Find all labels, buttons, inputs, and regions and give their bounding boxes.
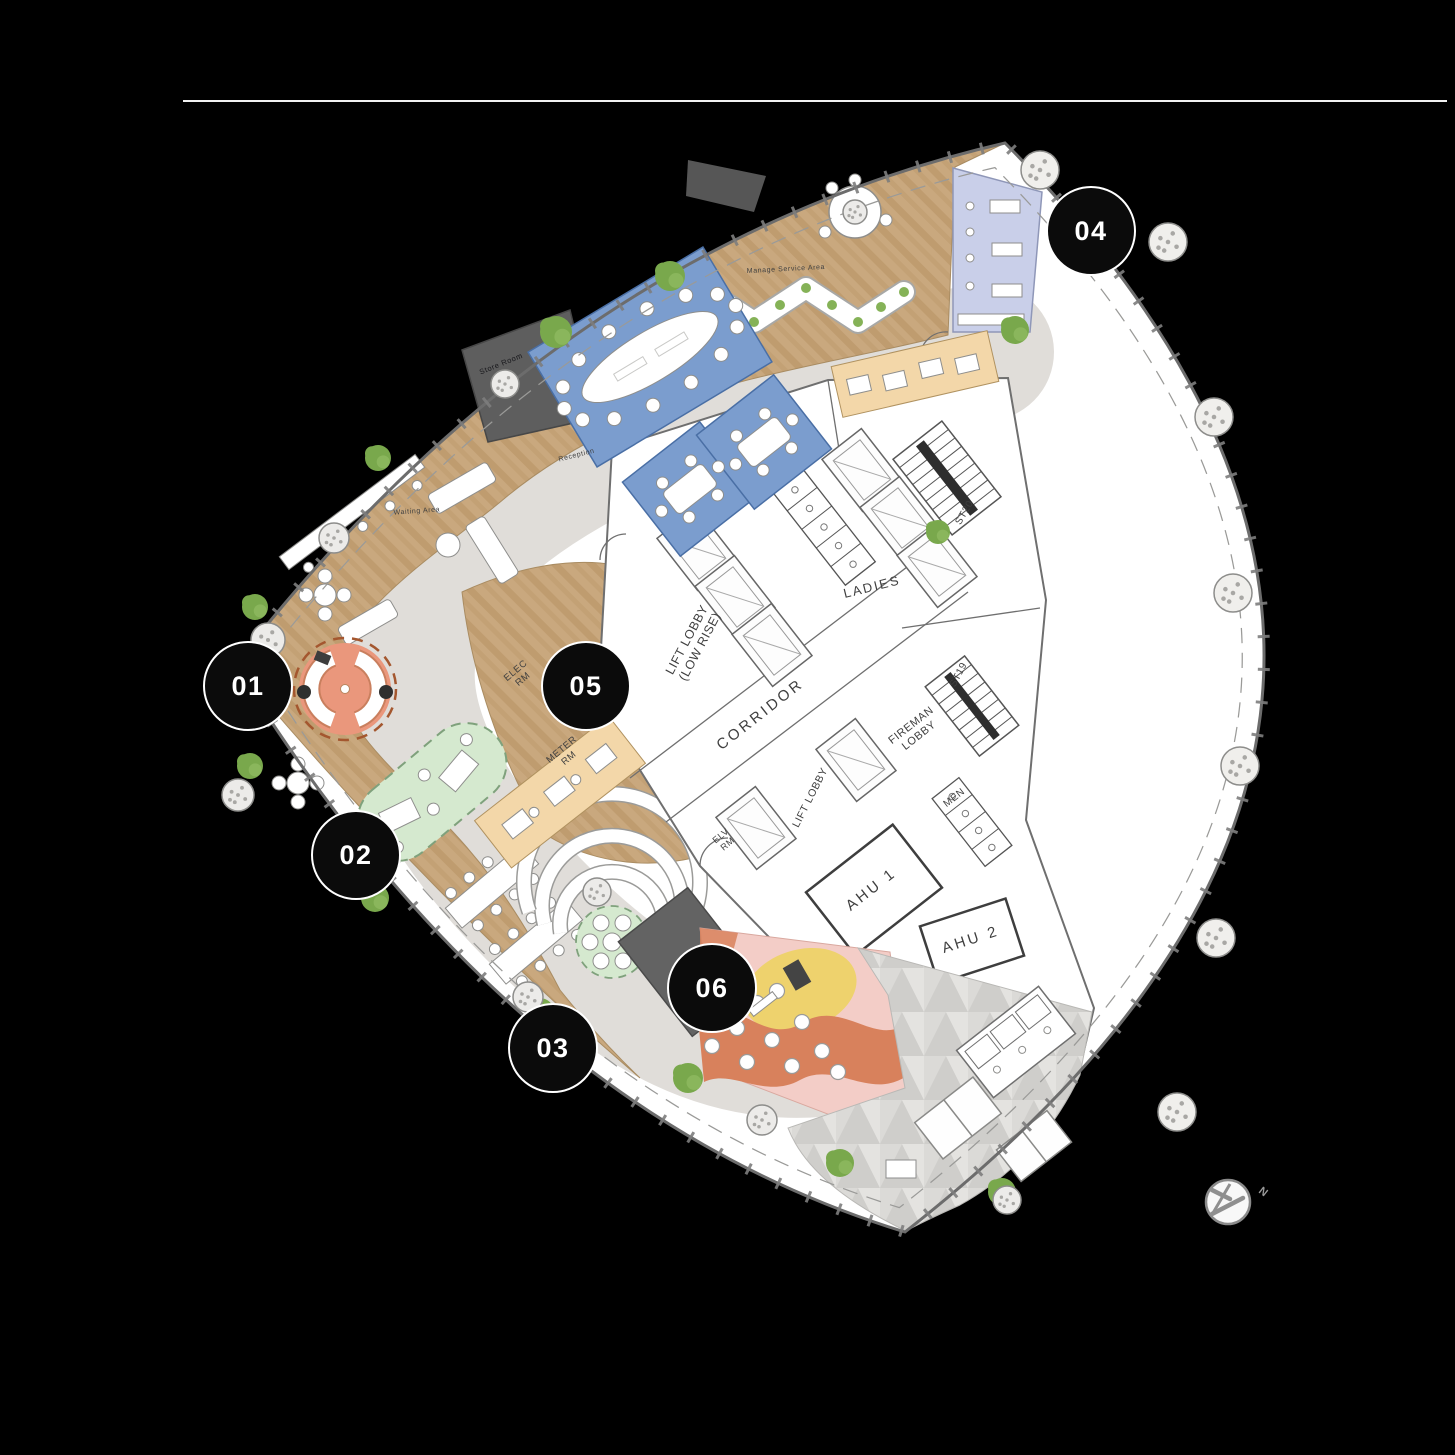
stool-icon (740, 1055, 755, 1070)
chair-icon (646, 398, 660, 412)
planter-icon (491, 370, 519, 398)
column-icon (1214, 574, 1252, 612)
tree-icon (673, 1063, 703, 1093)
desk-planter-icon (827, 300, 837, 310)
stool-icon (795, 1015, 810, 1030)
tree-icon (540, 316, 572, 348)
planter-icon (843, 200, 867, 224)
compass-north-label: N (1256, 1185, 1270, 1199)
chair-icon (712, 489, 724, 501)
stool-icon (831, 1065, 846, 1080)
marker-number: 06 (695, 973, 728, 1003)
slide-canvas: N LIFT LOBBY(LOW RISE)CORRIDORLADIESFIRE… (0, 0, 1455, 1455)
marker-number: 02 (339, 840, 372, 870)
column-icon (1021, 151, 1059, 189)
marker-04[interactable]: 04 (1047, 187, 1135, 275)
chair-icon (685, 455, 697, 467)
desk-planter-icon (899, 287, 909, 297)
dark-service-sliver (686, 160, 766, 212)
marker-03[interactable]: 03 (509, 1004, 597, 1092)
marker-05[interactable]: 05 (542, 642, 630, 730)
desk-planter-icon (876, 302, 886, 312)
marker-number: 01 (231, 671, 264, 701)
chair-icon (683, 511, 695, 523)
tree-icon (1001, 316, 1029, 344)
chair-icon (556, 380, 570, 394)
chair-icon (730, 458, 742, 470)
tree-icon (926, 520, 950, 544)
marker-02[interactable]: 02 (312, 811, 400, 899)
chair-icon (730, 320, 744, 334)
tree-icon (655, 261, 685, 291)
chair-icon (656, 477, 668, 489)
stool-icon (785, 1059, 800, 1074)
marker-01[interactable]: 01 (204, 642, 292, 730)
floor-plan: N LIFT LOBBY(LOW RISE)CORRIDORLADIESFIRE… (0, 0, 1455, 1455)
planter-icon (583, 878, 611, 906)
tree-icon (237, 753, 263, 779)
marker-number: 05 (569, 671, 602, 701)
chair-icon (684, 375, 698, 389)
chair-icon (557, 402, 571, 416)
experimental-room (953, 168, 1042, 332)
chair-icon (759, 408, 771, 420)
planter-icon (747, 1105, 777, 1135)
marker-number: 03 (536, 1033, 569, 1063)
stool-icon (765, 1033, 780, 1048)
desk-planter-icon (801, 283, 811, 293)
chair-icon (710, 287, 724, 301)
stool-icon (815, 1044, 830, 1059)
column-icon (1221, 747, 1259, 785)
tree-icon (826, 1149, 854, 1177)
chair-icon (757, 464, 769, 476)
chair-icon (786, 414, 798, 426)
chair-icon (576, 413, 590, 427)
chair-icon (730, 430, 742, 442)
chair-icon (712, 461, 724, 473)
chair-icon (602, 325, 616, 339)
column-icon (1195, 398, 1233, 436)
chair-icon (607, 412, 621, 426)
planter-icon (222, 779, 254, 811)
marker-06[interactable]: 06 (668, 944, 756, 1032)
chair-icon (656, 505, 668, 517)
marker-number: 04 (1074, 216, 1107, 246)
desk-planter-icon (853, 317, 863, 327)
chair-icon (729, 298, 743, 312)
column-icon (1197, 919, 1235, 957)
north-arrow-compass: N (1206, 1180, 1270, 1224)
tree-icon (365, 445, 391, 471)
chair-icon (714, 347, 728, 361)
chair-icon (786, 442, 798, 454)
column-icon (1149, 223, 1187, 261)
planter-icon (993, 1186, 1021, 1214)
column-icon (1158, 1093, 1196, 1131)
stool-icon (705, 1039, 720, 1054)
tree-icon (242, 594, 268, 620)
chair-icon (679, 288, 693, 302)
planter-icon (319, 523, 349, 553)
desk-planter-icon (775, 300, 785, 310)
